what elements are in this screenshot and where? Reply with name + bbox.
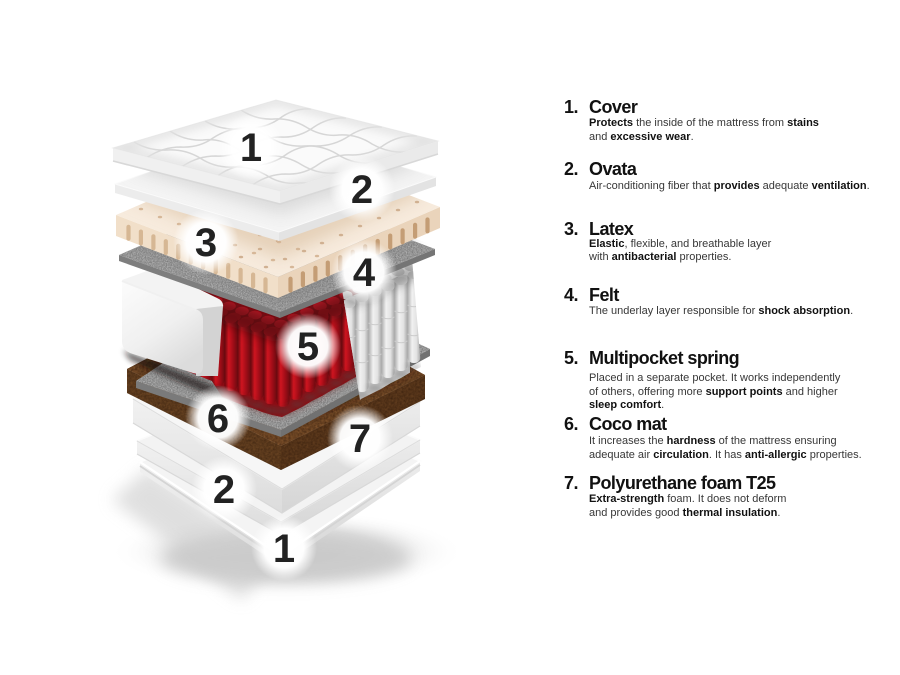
svg-text:2: 2: [213, 468, 235, 512]
svg-text:2: 2: [351, 168, 373, 212]
svg-text:7: 7: [349, 417, 371, 461]
svg-text:6: 6: [207, 397, 229, 441]
svg-text:1: 1: [273, 527, 295, 571]
svg-text:4: 4: [353, 251, 376, 295]
svg-text:5: 5: [297, 325, 319, 369]
svg-text:1: 1: [240, 126, 262, 170]
svg-text:3: 3: [195, 221, 217, 265]
